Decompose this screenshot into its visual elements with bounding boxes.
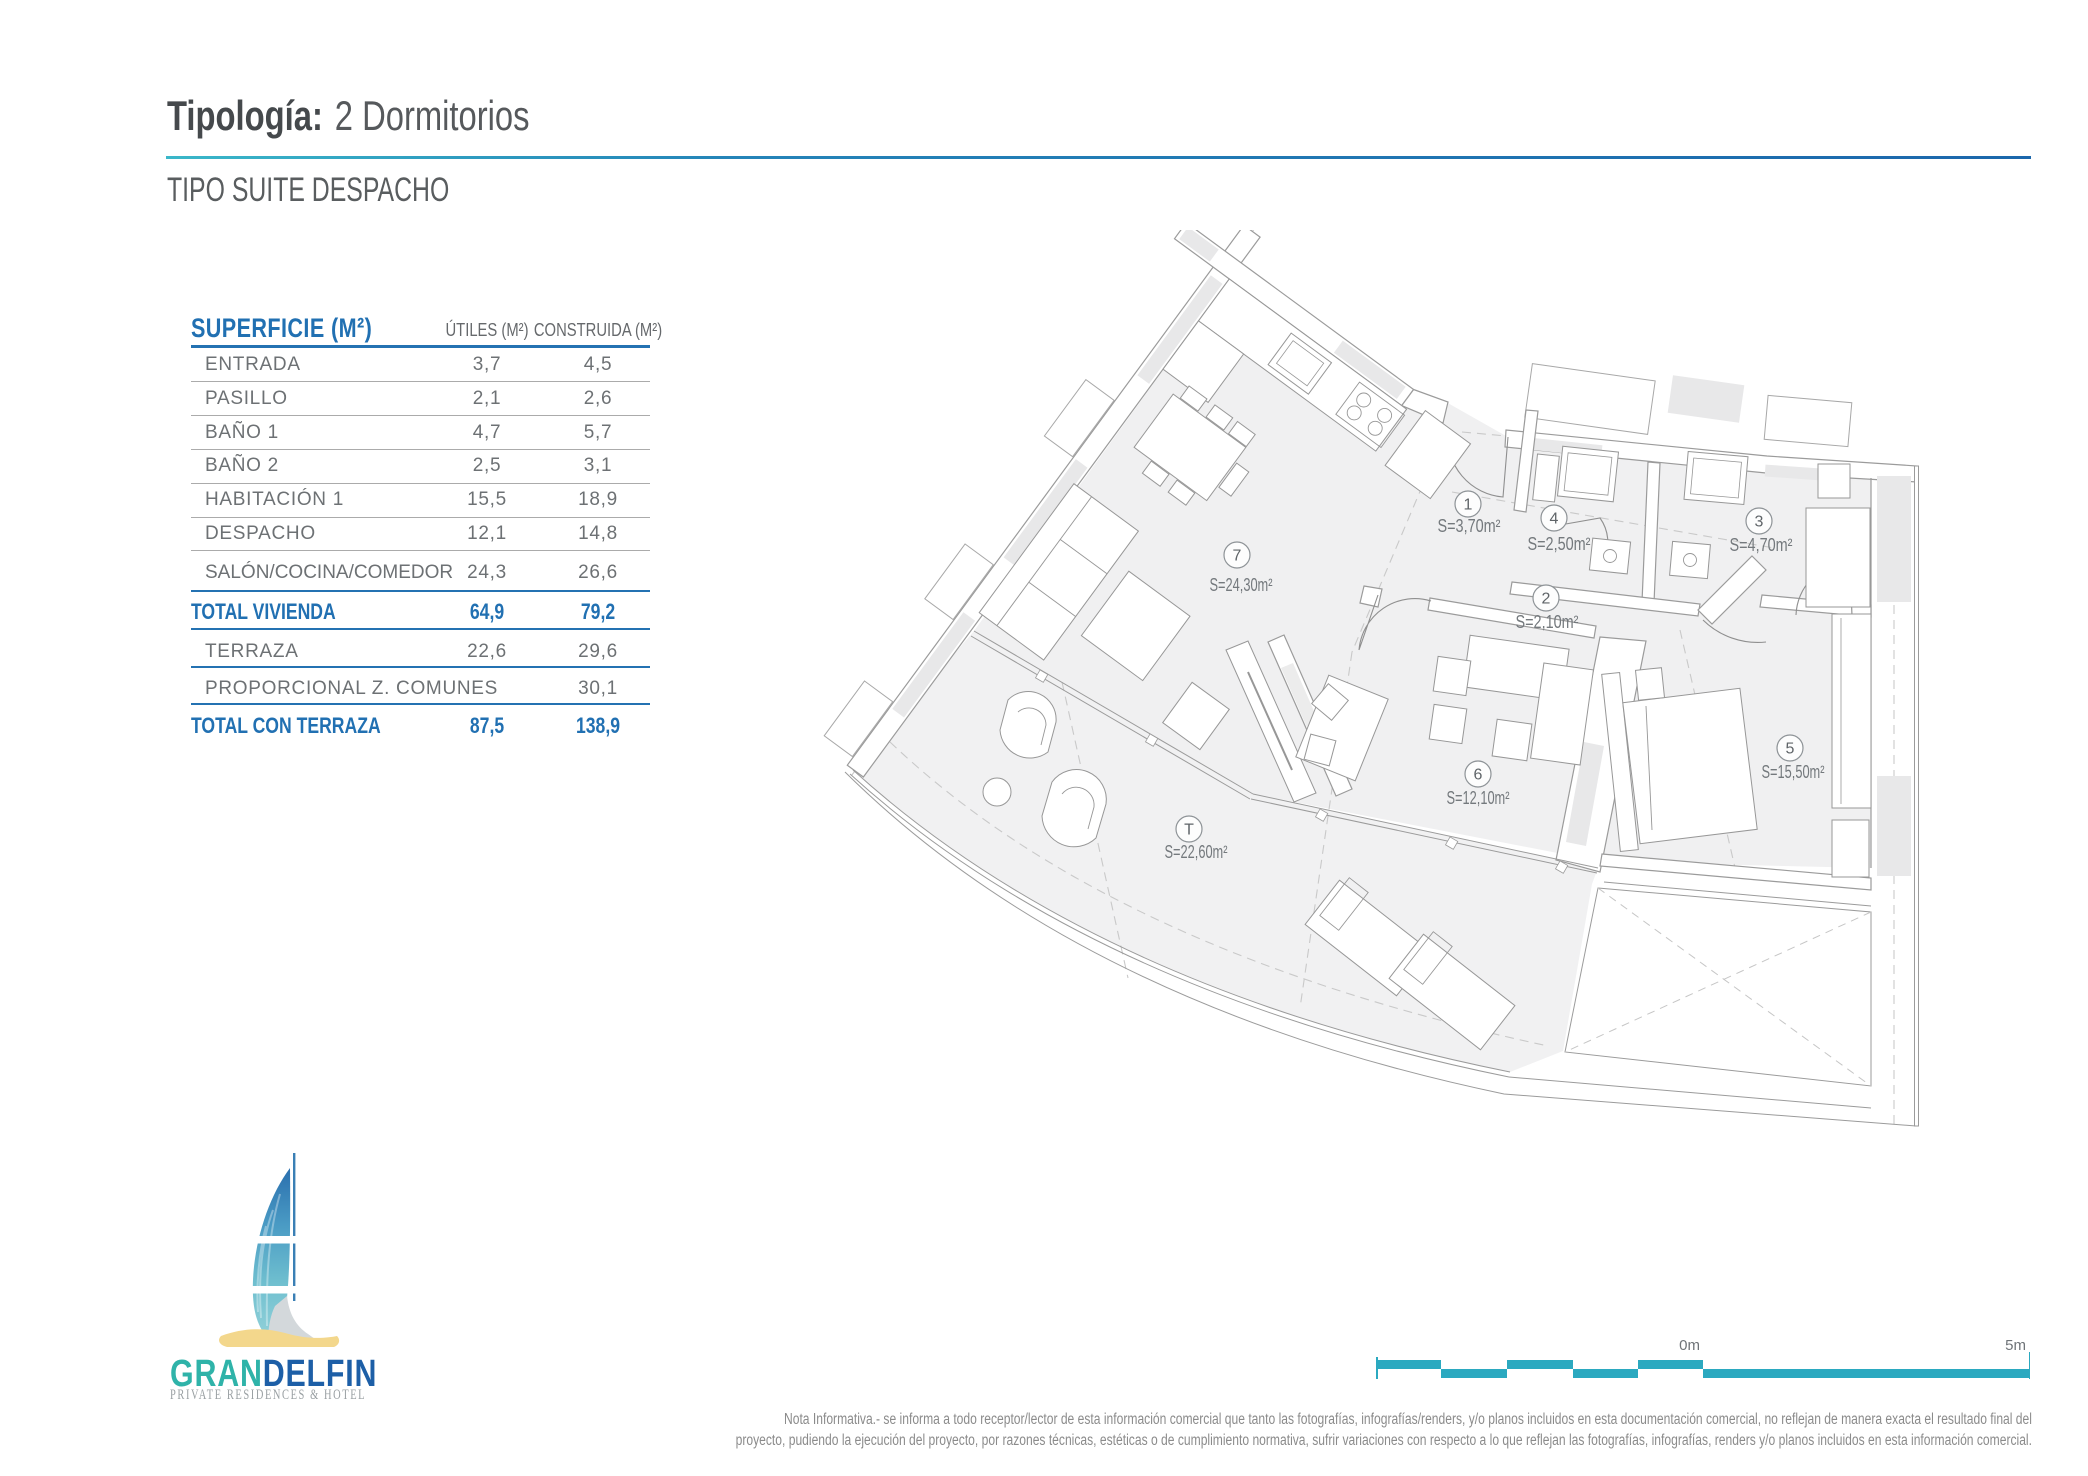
- svg-text:S=12,10m²: S=12,10m²: [1447, 788, 1510, 808]
- svg-text:6: 6: [1474, 767, 1483, 784]
- svg-text:3: 3: [1755, 514, 1764, 531]
- svg-text:4: 4: [1550, 511, 1559, 528]
- svg-text:1: 1: [1464, 497, 1473, 514]
- svg-text:S=24,30m²: S=24,30m²: [1210, 575, 1273, 595]
- svg-text:T: T: [1184, 822, 1194, 839]
- svg-text:S=22,60m²: S=22,60m²: [1165, 842, 1228, 862]
- svg-text:7: 7: [1233, 548, 1242, 565]
- svg-text:S=3,70m²: S=3,70m²: [1438, 516, 1501, 536]
- svg-text:S=4,70m²: S=4,70m²: [1730, 535, 1793, 555]
- svg-text:S=15,50m²: S=15,50m²: [1762, 762, 1825, 782]
- svg-text:S=2,10m²: S=2,10m²: [1516, 612, 1579, 632]
- svg-text:2: 2: [1542, 591, 1551, 608]
- svg-text:5: 5: [1786, 741, 1795, 758]
- svg-text:S=2,50m²: S=2,50m²: [1528, 534, 1591, 554]
